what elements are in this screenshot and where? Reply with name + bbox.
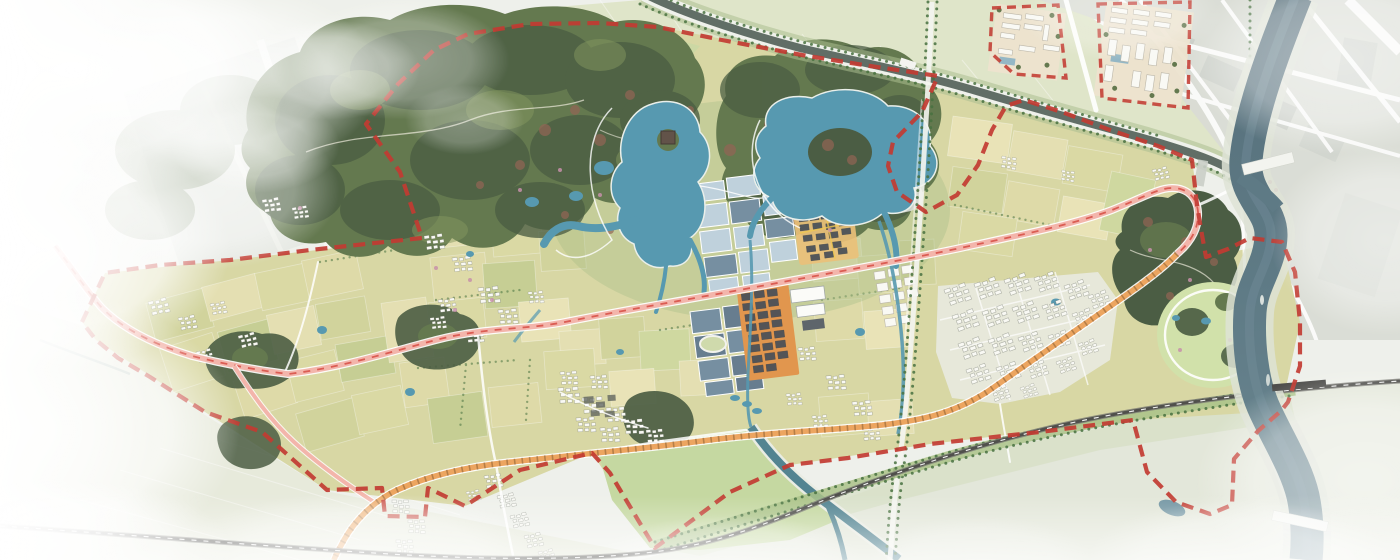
- fog-vignette: [0, 0, 1400, 560]
- masterplan-map: [0, 0, 1400, 560]
- masterplan-canvas: [0, 0, 1400, 560]
